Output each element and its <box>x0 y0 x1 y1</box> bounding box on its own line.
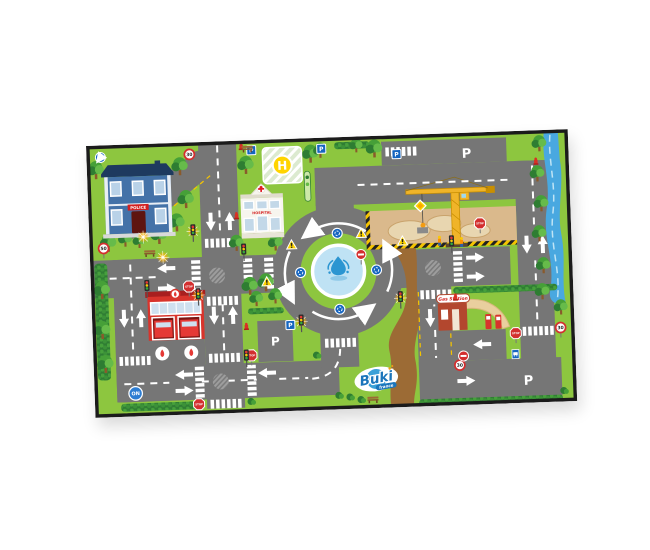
direction-sign <box>95 152 105 162</box>
product-photo: P P P P P <box>0 0 650 550</box>
svg-text:30: 30 <box>557 325 563 331</box>
speed-limit-sign: 30 <box>455 360 465 370</box>
parking-label: P <box>271 334 280 348</box>
police-sign-label: POLICE <box>130 205 146 211</box>
stop-sign: STOP <box>193 399 204 410</box>
construction-worker <box>460 237 463 247</box>
parking-label: P <box>461 147 471 162</box>
on-button: ON <box>129 386 143 400</box>
helipad: H <box>262 146 302 183</box>
svg-text:50: 50 <box>100 246 106 252</box>
parking-sign: P <box>317 144 326 153</box>
no-entry-sign <box>458 351 468 361</box>
svg-text:ON: ON <box>131 391 140 397</box>
mat-print: P P P P P <box>86 129 577 418</box>
parking-label: P <box>523 374 533 389</box>
hospital-label: HOSPITAL <box>252 211 272 216</box>
helipad-label: H <box>277 158 288 172</box>
play-mat: P P P P P <box>86 129 577 418</box>
svg-text:30: 30 <box>186 152 192 158</box>
construction-worker <box>438 236 441 246</box>
svg-text:30: 30 <box>457 363 463 369</box>
police-station: POLICE <box>101 160 176 238</box>
